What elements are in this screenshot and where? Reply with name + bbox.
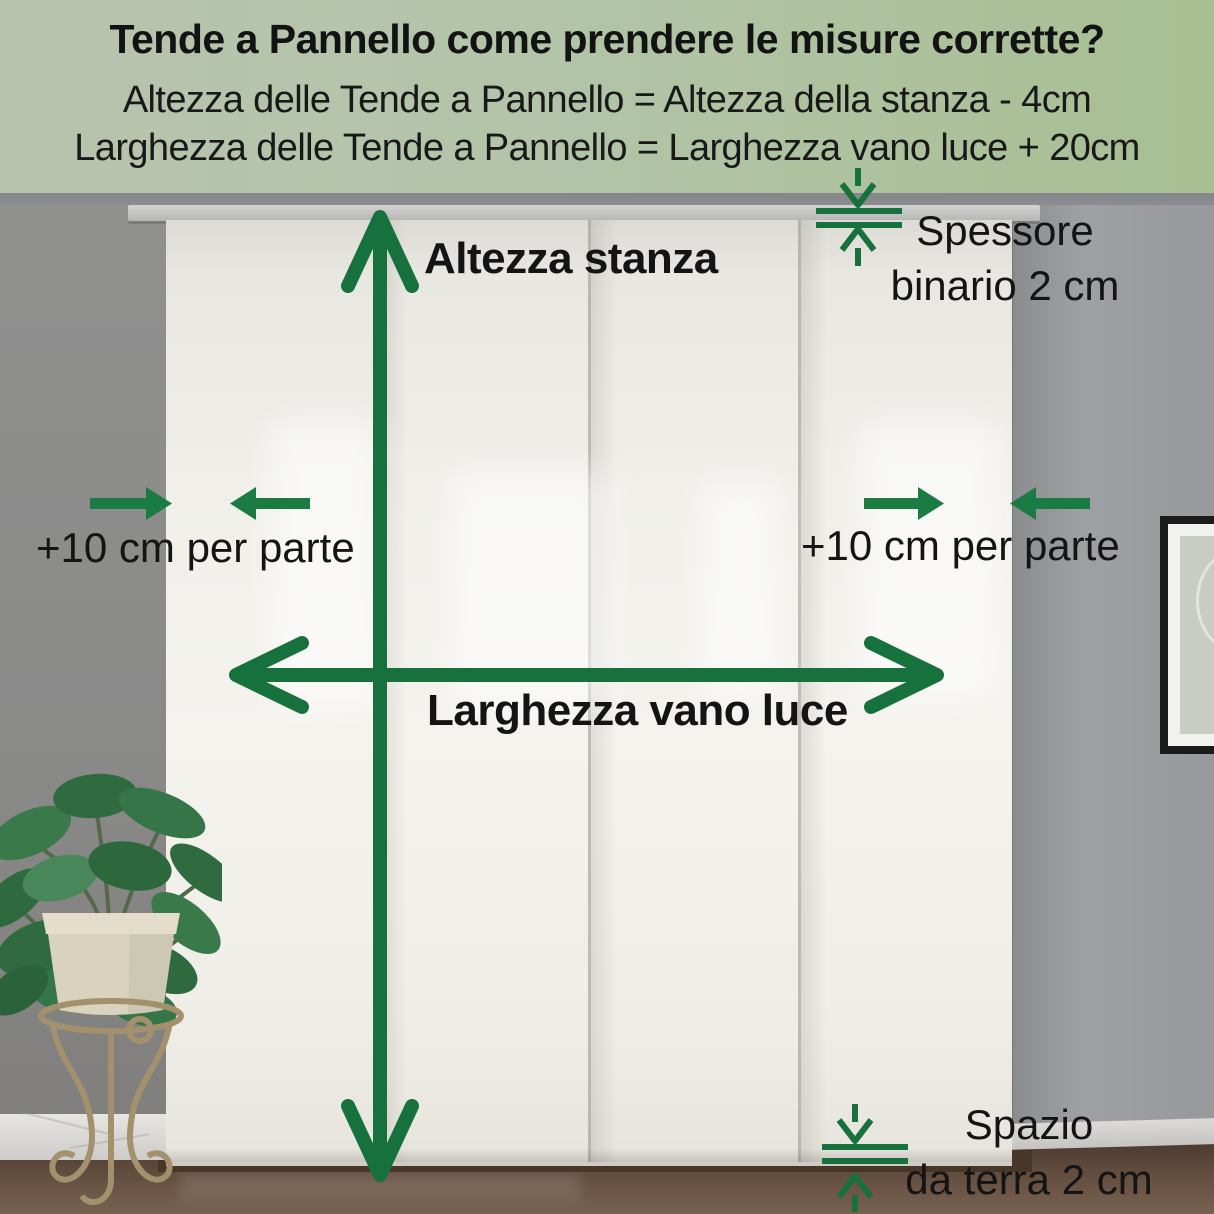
right-margin-label: +10 cm per parte — [801, 522, 1120, 570]
width-formula: Larghezza delle Tende a Pannello = Largh… — [0, 124, 1214, 172]
rail-thickness-label-line1: Spessore — [875, 203, 1135, 258]
curtain-hem — [166, 1148, 1012, 1162]
left-margin-label: +10 cm per parte — [36, 524, 355, 572]
frame-artwork-circle — [1196, 550, 1214, 652]
rail-thickness-label-line2: binario 2 cm — [875, 258, 1135, 313]
header-banner: Tende a Pannello come prendere le misure… — [0, 0, 1214, 193]
opening-width-label: Larghezza vano luce — [427, 686, 848, 736]
panel-seam-shadow — [381, 220, 407, 1162]
picture-frame — [1160, 516, 1214, 754]
floor-reflection — [180, 1172, 580, 1200]
floor-gap-label-line1: Spazio — [899, 1097, 1159, 1152]
page-title: Tende a Pannello come prendere le misure… — [0, 0, 1214, 63]
floor-gap-label: Spazio da terra 2 cm — [899, 1097, 1159, 1207]
frame-artwork — [1180, 536, 1214, 734]
room-height-label: Altezza stanza — [424, 234, 718, 284]
panel-curtain-measure-infographic: Tende a Pannello come prendere le misure… — [0, 0, 1214, 1214]
potted-plant — [0, 738, 222, 1214]
curtain-reflection — [450, 470, 610, 710]
curtain-reflection — [700, 480, 780, 700]
plant-stand — [41, 1001, 181, 1202]
floor-gap-label-line2: da terra 2 cm — [899, 1152, 1159, 1207]
rail-thickness-label: Spessore binario 2 cm — [875, 203, 1135, 313]
height-formula: Altezza delle Tende a Pannello = Altezza… — [0, 76, 1214, 124]
